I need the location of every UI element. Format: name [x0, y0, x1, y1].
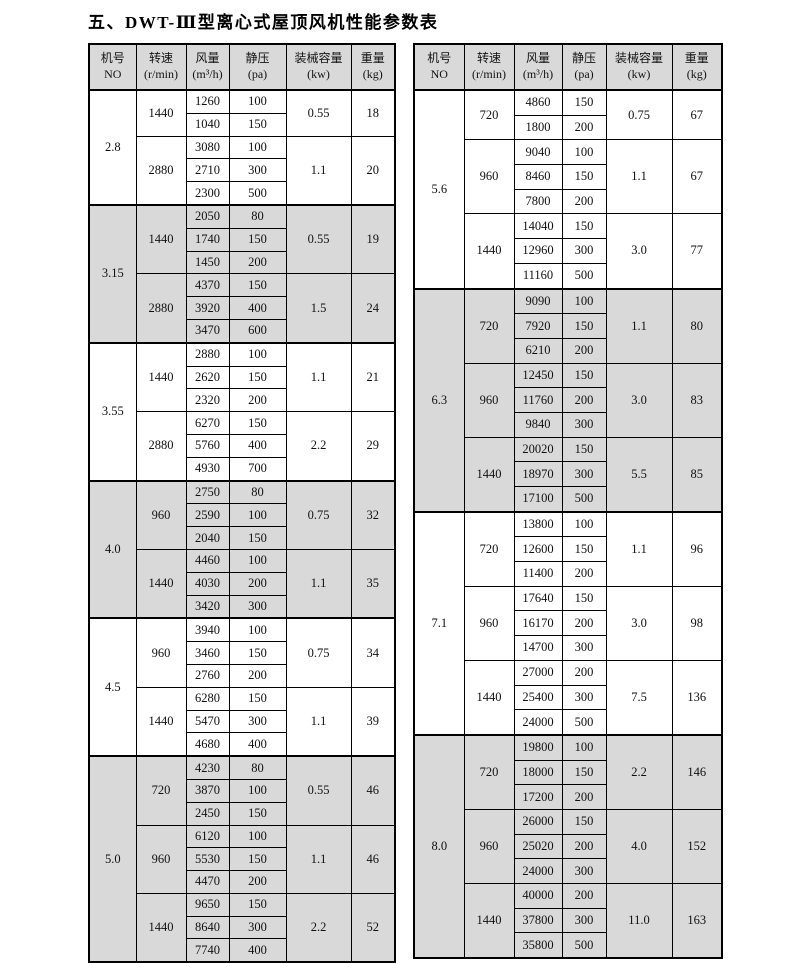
pressure-cell: 200 — [562, 338, 606, 363]
machine-no-cell: 3.15 — [89, 205, 136, 343]
pressure-cell: 80 — [229, 481, 286, 504]
pressure-cell: 100 — [562, 289, 606, 314]
column-header-no: 机号NO — [414, 44, 464, 90]
weight-cell: 152 — [672, 809, 722, 883]
power-cell: 3.0 — [606, 363, 672, 437]
pressure-cell: 100 — [562, 140, 606, 165]
pressure-cell: 100 — [562, 735, 606, 760]
pressure-cell: 100 — [229, 504, 286, 527]
speed-cell: 1440 — [136, 549, 186, 618]
pressure-cell: 150 — [562, 809, 606, 834]
power-cell: 1.1 — [606, 140, 672, 214]
column-header-label: 重量 — [673, 51, 722, 67]
speed-cell: 1440 — [464, 214, 514, 289]
column-header-unit: (m³/h) — [187, 67, 229, 83]
power-cell: 3.0 — [606, 586, 672, 660]
power-cell: 1.1 — [286, 549, 351, 618]
speed-cell: 1440 — [464, 437, 514, 512]
weight-cell: 85 — [672, 437, 722, 512]
column-header-label: 静压 — [230, 51, 286, 67]
speed-cell: 2880 — [136, 412, 186, 481]
airflow-cell: 5760 — [186, 434, 229, 457]
pressure-cell: 150 — [562, 90, 606, 115]
airflow-cell: 16170 — [514, 611, 562, 636]
power-cell: 4.0 — [606, 809, 672, 883]
pressure-cell: 200 — [229, 389, 286, 412]
pressure-cell: 300 — [562, 636, 606, 661]
airflow-cell: 20020 — [514, 437, 562, 462]
fan-performance-table-left: 机号NO转速(r/min)风量(m³/h)静压(pa)装械容量(kw)重量(kg… — [88, 43, 396, 963]
header-row: 机号NO转速(r/min)风量(m³/h)静压(pa)装械容量(kw)重量(kg… — [414, 44, 722, 90]
pressure-cell: 150 — [229, 228, 286, 251]
table-row: 4.09602750800.7532 — [89, 481, 395, 504]
power-cell: 0.55 — [286, 756, 351, 825]
pressure-cell: 300 — [562, 462, 606, 487]
airflow-cell: 25400 — [514, 685, 562, 710]
airflow-cell: 2040 — [186, 527, 229, 550]
pressure-cell: 300 — [229, 595, 286, 618]
weight-cell: 18 — [351, 90, 395, 136]
weight-cell: 20 — [351, 136, 395, 205]
airflow-cell: 1740 — [186, 228, 229, 251]
pressure-cell: 100 — [229, 549, 286, 572]
weight-cell: 35 — [351, 549, 395, 618]
speed-cell: 1440 — [464, 884, 514, 959]
column-header-label: 装械容量 — [287, 51, 351, 67]
speed-cell: 720 — [464, 90, 514, 140]
power-cell: 11.0 — [606, 884, 672, 959]
airflow-cell: 1450 — [186, 251, 229, 274]
airflow-cell: 4230 — [186, 756, 229, 779]
airflow-cell: 13800 — [514, 512, 562, 537]
pressure-cell: 100 — [229, 136, 286, 159]
weight-cell: 39 — [351, 687, 395, 756]
speed-cell: 960 — [136, 825, 186, 893]
column-header-pressure: 静压(pa) — [562, 44, 606, 90]
table-row: 8.0720198001002.2146 — [414, 735, 722, 760]
airflow-cell: 9040 — [514, 140, 562, 165]
pressure-cell: 150 — [229, 848, 286, 871]
airflow-cell: 4460 — [186, 549, 229, 572]
pressure-cell: 600 — [229, 319, 286, 342]
pressure-cell: 150 — [562, 214, 606, 239]
airflow-cell: 6120 — [186, 825, 229, 848]
weight-cell: 46 — [351, 756, 395, 825]
column-header-label: 转速 — [465, 51, 514, 67]
airflow-cell: 35800 — [514, 933, 562, 958]
column-header-airflow: 风量(m³/h) — [514, 44, 562, 90]
pressure-cell: 300 — [562, 859, 606, 884]
power-cell: 2.2 — [286, 412, 351, 481]
table-row: 5.672048601500.7567 — [414, 90, 722, 115]
pressure-cell: 300 — [562, 412, 606, 437]
pressure-cell: 200 — [562, 562, 606, 587]
airflow-cell: 7800 — [514, 189, 562, 214]
table-row: 3.1514402050800.5519 — [89, 205, 395, 228]
pressure-cell: 700 — [229, 457, 286, 480]
pressure-cell: 200 — [562, 884, 606, 909]
tables-container: 机号NO转速(r/min)风量(m³/h)静压(pa)装械容量(kw)重量(kg… — [88, 43, 800, 963]
pressure-cell: 500 — [562, 487, 606, 512]
speed-cell: 1440 — [464, 660, 514, 735]
table-row: 7.1720138001001.196 — [414, 512, 722, 537]
airflow-cell: 1040 — [186, 113, 229, 136]
power-cell: 3.0 — [606, 214, 672, 289]
speed-cell: 960 — [136, 618, 186, 687]
pressure-cell: 300 — [229, 710, 286, 733]
table-row: 4.596039401000.7534 — [89, 618, 395, 641]
column-header-speed: 转速(r/min) — [136, 44, 186, 90]
power-cell: 0.55 — [286, 90, 351, 136]
power-cell: 1.1 — [606, 289, 672, 364]
airflow-cell: 26000 — [514, 809, 562, 834]
weight-cell: 67 — [672, 90, 722, 140]
weight-cell: 98 — [672, 586, 722, 660]
airflow-cell: 1260 — [186, 90, 229, 113]
pressure-cell: 300 — [562, 908, 606, 933]
pressure-cell: 500 — [562, 710, 606, 735]
airflow-cell: 18000 — [514, 760, 562, 785]
airflow-cell: 4680 — [186, 733, 229, 756]
airflow-cell: 40000 — [514, 884, 562, 909]
pressure-cell: 100 — [562, 512, 606, 537]
airflow-cell: 4030 — [186, 572, 229, 595]
speed-cell: 960 — [136, 481, 186, 550]
weight-cell: 19 — [351, 205, 395, 274]
pressure-cell: 150 — [229, 412, 286, 435]
table-row: 3.55144028801001.121 — [89, 343, 395, 366]
airflow-cell: 2880 — [186, 343, 229, 366]
pressure-cell: 400 — [229, 434, 286, 457]
column-header-weight: 重量(kg) — [351, 44, 395, 90]
airflow-cell: 6280 — [186, 687, 229, 710]
weight-cell: 52 — [351, 893, 395, 962]
speed-cell: 2880 — [136, 274, 186, 343]
airflow-cell: 3940 — [186, 618, 229, 641]
pressure-cell: 200 — [562, 834, 606, 859]
pressure-cell: 150 — [229, 687, 286, 710]
speed-cell: 2880 — [136, 136, 186, 205]
machine-no-cell: 5.6 — [414, 90, 464, 289]
airflow-cell: 3870 — [186, 779, 229, 802]
pressure-cell: 150 — [229, 893, 286, 916]
speed-cell: 1440 — [136, 893, 186, 962]
speed-cell: 720 — [464, 735, 514, 810]
column-header-label: 装械容量 — [607, 51, 672, 67]
column-header-unit: (kw) — [287, 67, 351, 83]
column-header-weight: 重量(kg) — [672, 44, 722, 90]
pressure-cell: 500 — [229, 182, 286, 205]
column-header-label: 风量 — [515, 51, 562, 67]
airflow-cell: 2750 — [186, 481, 229, 504]
airflow-cell: 2760 — [186, 664, 229, 687]
power-cell: 1.1 — [286, 825, 351, 893]
airflow-cell: 7740 — [186, 939, 229, 962]
pressure-cell: 200 — [562, 388, 606, 413]
airflow-cell: 2620 — [186, 366, 229, 389]
machine-no-cell: 5.0 — [89, 756, 136, 962]
airflow-cell: 5530 — [186, 848, 229, 871]
column-header-unit: (r/min) — [137, 67, 186, 83]
pressure-cell: 300 — [562, 685, 606, 710]
column-header-power: 装械容量(kw) — [286, 44, 351, 90]
column-header-power: 装械容量(kw) — [606, 44, 672, 90]
weight-cell: 32 — [351, 481, 395, 550]
airflow-cell: 11400 — [514, 562, 562, 587]
airflow-cell: 3470 — [186, 319, 229, 342]
weight-cell: 83 — [672, 363, 722, 437]
power-cell: 1.1 — [606, 512, 672, 587]
pressure-cell: 300 — [229, 159, 286, 182]
power-cell: 1.1 — [286, 687, 351, 756]
airflow-cell: 2710 — [186, 159, 229, 182]
pressure-cell: 200 — [562, 115, 606, 140]
weight-cell: 67 — [672, 140, 722, 214]
column-header-label: 风量 — [187, 51, 229, 67]
pressure-cell: 400 — [229, 939, 286, 962]
speed-cell: 960 — [464, 140, 514, 214]
column-header-unit: NO — [415, 67, 464, 83]
pressure-cell: 500 — [562, 263, 606, 288]
column-header-unit: (kg) — [673, 67, 722, 83]
weight-cell: 21 — [351, 343, 395, 412]
page-title: 五、DWT-Ⅲ型离心式屋顶风机性能参数表 — [88, 8, 800, 33]
airflow-cell: 3920 — [186, 297, 229, 320]
airflow-cell: 9650 — [186, 893, 229, 916]
weight-cell: 29 — [351, 412, 395, 481]
speed-cell: 1440 — [136, 90, 186, 136]
airflow-cell: 14700 — [514, 636, 562, 661]
airflow-cell: 37800 — [514, 908, 562, 933]
weight-cell: 24 — [351, 274, 395, 343]
airflow-cell: 17200 — [514, 785, 562, 810]
airflow-cell: 11760 — [514, 388, 562, 413]
pressure-cell: 150 — [562, 760, 606, 785]
airflow-cell: 3080 — [186, 136, 229, 159]
speed-cell: 720 — [464, 512, 514, 587]
airflow-cell: 9840 — [514, 412, 562, 437]
column-header-airflow: 风量(m³/h) — [186, 44, 229, 90]
airflow-cell: 4930 — [186, 457, 229, 480]
weight-cell: 163 — [672, 884, 722, 959]
column-header-unit: (kw) — [607, 67, 672, 83]
machine-no-cell: 2.8 — [89, 90, 136, 205]
airflow-cell: 2300 — [186, 182, 229, 205]
pressure-cell: 100 — [229, 90, 286, 113]
pressure-cell: 100 — [229, 779, 286, 802]
airflow-cell: 24000 — [514, 710, 562, 735]
power-cell: 1.1 — [286, 343, 351, 412]
pressure-cell: 150 — [562, 165, 606, 190]
airflow-cell: 3460 — [186, 642, 229, 665]
airflow-cell: 8460 — [514, 165, 562, 190]
table-row: 6.372090901001.180 — [414, 289, 722, 314]
speed-cell: 1440 — [136, 687, 186, 756]
airflow-cell: 2590 — [186, 504, 229, 527]
weight-cell: 136 — [672, 660, 722, 735]
weight-cell: 34 — [351, 618, 395, 687]
machine-no-cell: 8.0 — [414, 735, 464, 958]
pressure-cell: 200 — [229, 871, 286, 894]
power-cell: 1.5 — [286, 274, 351, 343]
pressure-cell: 500 — [562, 933, 606, 958]
pressure-cell: 100 — [229, 618, 286, 641]
table-row: 2.8144012601000.5518 — [89, 90, 395, 113]
fan-performance-table-right: 机号NO转速(r/min)风量(m³/h)静压(pa)装械容量(kw)重量(kg… — [413, 43, 723, 959]
column-header-speed: 转速(r/min) — [464, 44, 514, 90]
pressure-cell: 150 — [562, 314, 606, 339]
pressure-cell: 200 — [562, 785, 606, 810]
column-header-pressure: 静压(pa) — [229, 44, 286, 90]
pressure-cell: 150 — [562, 437, 606, 462]
speed-cell: 720 — [136, 756, 186, 825]
speed-cell: 720 — [464, 289, 514, 364]
column-header-label: 静压 — [563, 51, 606, 67]
airflow-cell: 7920 — [514, 314, 562, 339]
pressure-cell: 300 — [562, 239, 606, 264]
pressure-cell: 80 — [229, 205, 286, 228]
airflow-cell: 17100 — [514, 487, 562, 512]
airflow-cell: 19800 — [514, 735, 562, 760]
weight-cell: 80 — [672, 289, 722, 364]
column-header-label: 重量 — [352, 51, 395, 67]
airflow-cell: 6210 — [514, 338, 562, 363]
speed-cell: 960 — [464, 809, 514, 883]
airflow-cell: 2050 — [186, 205, 229, 228]
pressure-cell: 200 — [229, 572, 286, 595]
pressure-cell: 150 — [562, 586, 606, 611]
airflow-cell: 3420 — [186, 595, 229, 618]
column-header-label: 机号 — [415, 51, 464, 67]
airflow-cell: 2320 — [186, 389, 229, 412]
airflow-cell: 18970 — [514, 462, 562, 487]
column-header-unit: (m³/h) — [515, 67, 562, 83]
weight-cell: 46 — [351, 825, 395, 893]
pressure-cell: 200 — [562, 660, 606, 685]
pressure-cell: 150 — [229, 113, 286, 136]
airflow-cell: 4860 — [514, 90, 562, 115]
power-cell: 2.2 — [606, 735, 672, 810]
airflow-cell: 4370 — [186, 274, 229, 297]
airflow-cell: 12450 — [514, 363, 562, 388]
power-cell: 0.55 — [286, 205, 351, 274]
airflow-cell: 14040 — [514, 214, 562, 239]
airflow-cell: 12600 — [514, 537, 562, 562]
machine-no-cell: 4.0 — [89, 481, 136, 619]
airflow-cell: 4470 — [186, 871, 229, 894]
column-header-unit: NO — [90, 67, 136, 83]
speed-cell: 1440 — [136, 205, 186, 274]
document-page: 五、DWT-Ⅲ型离心式屋顶风机性能参数表 机号NO转速(r/min)风量(m³/… — [0, 0, 800, 963]
pressure-cell: 400 — [229, 297, 286, 320]
pressure-cell: 150 — [229, 527, 286, 550]
pressure-cell: 200 — [229, 251, 286, 274]
column-header-label: 转速 — [137, 51, 186, 67]
airflow-cell: 17640 — [514, 586, 562, 611]
power-cell: 0.75 — [286, 618, 351, 687]
pressure-cell: 400 — [229, 733, 286, 756]
column-header-no: 机号NO — [89, 44, 136, 90]
speed-cell: 1440 — [136, 343, 186, 412]
power-cell: 0.75 — [286, 481, 351, 550]
pressure-cell: 200 — [562, 611, 606, 636]
pressure-cell: 150 — [229, 802, 286, 825]
pressure-cell: 150 — [229, 274, 286, 297]
column-header-unit: (pa) — [230, 67, 286, 83]
header-row: 机号NO转速(r/min)风量(m³/h)静压(pa)装械容量(kw)重量(kg… — [89, 44, 395, 90]
machine-no-cell: 6.3 — [414, 289, 464, 512]
speed-cell: 960 — [464, 586, 514, 660]
airflow-cell: 24000 — [514, 859, 562, 884]
pressure-cell: 300 — [229, 916, 286, 939]
airflow-cell: 25020 — [514, 834, 562, 859]
column-header-unit: (kg) — [352, 67, 395, 83]
weight-cell: 77 — [672, 214, 722, 289]
power-cell: 2.2 — [286, 893, 351, 962]
column-header-unit: (pa) — [563, 67, 606, 83]
airflow-cell: 1800 — [514, 115, 562, 140]
pressure-cell: 200 — [229, 664, 286, 687]
pressure-cell: 100 — [229, 825, 286, 848]
airflow-cell: 8640 — [186, 916, 229, 939]
pressure-cell: 100 — [229, 343, 286, 366]
machine-no-cell: 4.5 — [89, 618, 136, 756]
power-cell: 7.5 — [606, 660, 672, 735]
machine-no-cell: 3.55 — [89, 343, 136, 481]
pressure-cell: 150 — [229, 366, 286, 389]
airflow-cell: 2450 — [186, 802, 229, 825]
airflow-cell: 9090 — [514, 289, 562, 314]
pressure-cell: 150 — [562, 537, 606, 562]
airflow-cell: 6270 — [186, 412, 229, 435]
airflow-cell: 12960 — [514, 239, 562, 264]
airflow-cell: 11160 — [514, 263, 562, 288]
power-cell: 1.1 — [286, 136, 351, 205]
pressure-cell: 150 — [562, 363, 606, 388]
pressure-cell: 200 — [562, 189, 606, 214]
machine-no-cell: 7.1 — [414, 512, 464, 735]
pressure-cell: 80 — [229, 756, 286, 779]
speed-cell: 960 — [464, 363, 514, 437]
pressure-cell: 150 — [229, 642, 286, 665]
airflow-cell: 5470 — [186, 710, 229, 733]
weight-cell: 96 — [672, 512, 722, 587]
weight-cell: 146 — [672, 735, 722, 810]
column-header-label: 机号 — [90, 51, 136, 67]
airflow-cell: 27000 — [514, 660, 562, 685]
power-cell: 5.5 — [606, 437, 672, 512]
column-header-unit: (r/min) — [465, 67, 514, 83]
power-cell: 0.75 — [606, 90, 672, 140]
table-row: 5.07204230800.5546 — [89, 756, 395, 779]
